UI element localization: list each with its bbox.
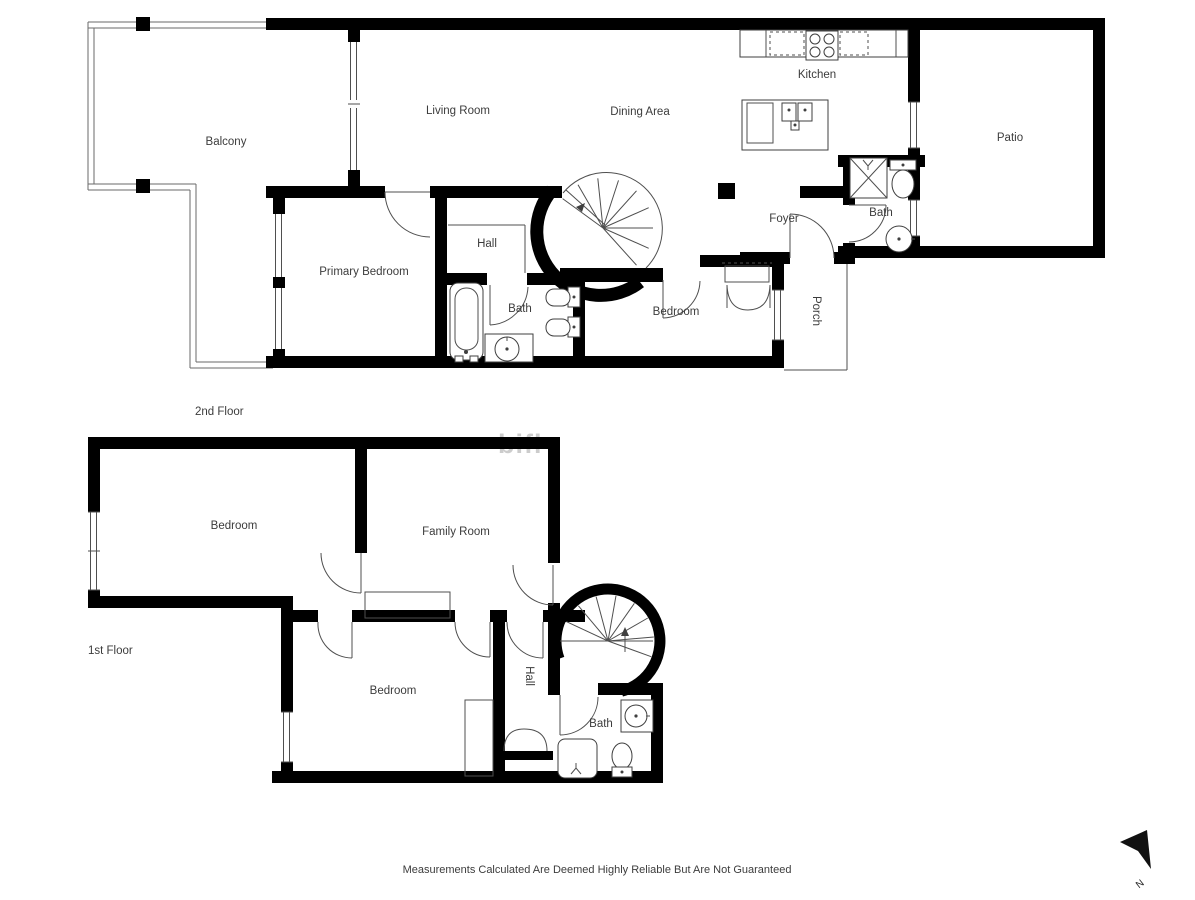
toilet-bowl	[546, 289, 570, 306]
second-floor-plan: Balcony Living Room Dining Area Kitchen …	[88, 17, 1105, 418]
room-label-living-room: Living Room	[426, 105, 490, 117]
family-room-door	[513, 565, 553, 605]
first-floor-title: 1st Floor	[88, 645, 133, 657]
tub-faucet	[464, 350, 468, 354]
room-label-balcony: Balcony	[206, 136, 247, 148]
bath-fixtures-1f	[558, 700, 653, 778]
first-floor-windows	[88, 512, 293, 762]
island-sink	[798, 103, 812, 121]
bedroom-lower-door2	[455, 622, 490, 657]
room-label-patio: Patio	[997, 132, 1023, 144]
center-bath-fixtures	[450, 283, 580, 362]
room-label-dining-area: Dining Area	[610, 106, 670, 118]
room-label-bath-2f: Bath	[508, 303, 532, 315]
spiral-staircase-2f	[563, 172, 663, 268]
room-label-family-room: Family Room	[422, 526, 490, 538]
room-label-porch: Porch	[810, 296, 822, 326]
kitchen-fixtures	[740, 30, 908, 150]
toilet-bowl	[612, 743, 632, 769]
hall-closet-doors	[504, 729, 547, 751]
room-label-primary-bedroom: Primary Bedroom	[319, 266, 408, 278]
floor-plan-svg: Balcony Living Room Dining Area Kitchen …	[0, 0, 1195, 900]
living-room-window	[348, 42, 360, 170]
first-floor-plan: Bedroom Family Room Bedroom Hall Bath 1s…	[88, 437, 663, 783]
bedroom-window	[88, 512, 100, 590]
room-label-kitchen: Kitchen	[798, 69, 836, 81]
north-arrow-icon	[1120, 830, 1151, 869]
primary-bedroom-door	[385, 192, 430, 237]
room-label-bedroom-lower: Bedroom	[370, 685, 417, 697]
bath-window	[908, 200, 920, 236]
island-sink	[782, 103, 796, 121]
shower-tub	[558, 739, 597, 778]
floor-plan-page: Balcony Living Room Dining Area Kitchen …	[0, 0, 1195, 900]
room-label-foyer: Foyer	[769, 213, 799, 225]
kitchen-window	[908, 102, 920, 148]
room-label-bath-1f: Bath	[589, 718, 613, 730]
balcony-post	[136, 179, 150, 193]
bedroom-closet	[722, 263, 772, 310]
closet-doors	[727, 285, 770, 310]
stove	[806, 31, 838, 60]
hall-door	[507, 622, 543, 658]
room-label-bedroom-1f: Bedroom	[211, 520, 258, 532]
second-floor-title: 2nd Floor	[195, 406, 244, 418]
balcony-post	[136, 17, 150, 31]
room-label-bath-upper: Bath	[869, 207, 893, 219]
bedroom-window	[772, 290, 784, 340]
bedroom-lower-window	[281, 712, 293, 762]
room-label-hall-1f: Hall	[523, 666, 535, 686]
toilet-bowl	[892, 170, 914, 198]
toilet-bowl	[546, 319, 570, 336]
bedroom-family-door	[321, 553, 361, 593]
balcony-railing	[88, 17, 273, 368]
stair-direction-arrow	[621, 627, 629, 636]
north-label: N	[1134, 878, 1146, 891]
structural-column	[718, 183, 735, 199]
disclaimer-text: Measurements Calculated Are Deemed Highl…	[403, 864, 792, 876]
stair-direction-arrow	[576, 203, 585, 212]
room-label-bedroom-2f: Bedroom	[653, 306, 700, 318]
north-arrow: N	[1120, 830, 1151, 891]
bedroom-closet-1f	[465, 700, 493, 776]
bedroom-lower-door	[318, 622, 352, 658]
room-label-hall-2f: Hall	[477, 238, 497, 250]
